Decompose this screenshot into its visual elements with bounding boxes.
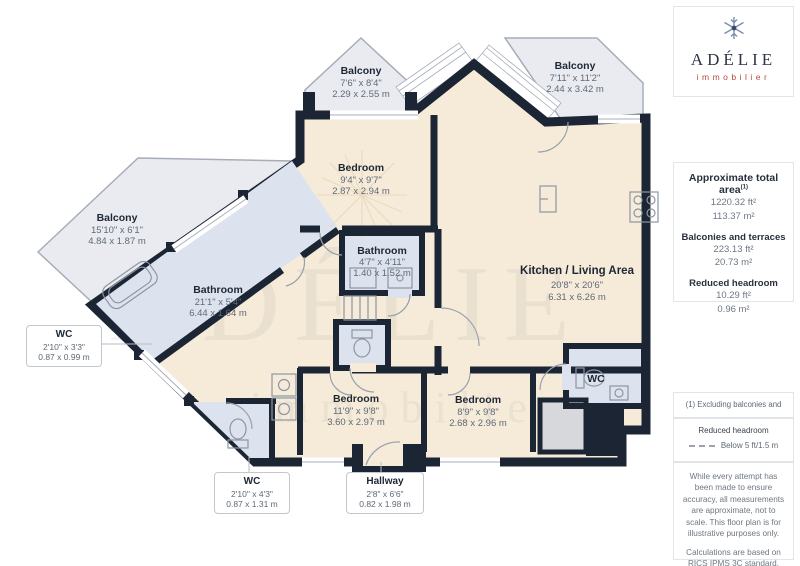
- brand-name: ADÉLIE: [674, 50, 793, 70]
- svg-text:20'8" x 20'6": 20'8" x 20'6": [551, 280, 603, 291]
- callout-hallway-metric: 0.82 x 1.98 m: [349, 499, 421, 510]
- footnote-box: (1) Excluding balconies and terraces: [673, 392, 794, 418]
- svg-text:2.87 x 2.94 m: 2.87 x 2.94 m: [332, 186, 390, 197]
- bedroom-top-label: Bedroom 9'4" x 9'7" 2.87 x 2.94 m: [332, 162, 390, 197]
- balcony-left-label: Balcony 15'10" x 6'1" 4.84 x 1.87 m: [88, 212, 146, 247]
- dashed-line-icon: [689, 445, 715, 447]
- disclaimer-box: While every attempt has been made to ens…: [673, 462, 794, 560]
- callout-wc-bottom: WC 2'10" x 4'3" 0.87 x 1.31 m: [214, 472, 290, 514]
- svg-text:Balcony: Balcony: [555, 60, 596, 72]
- svg-text:Bathroom: Bathroom: [357, 245, 407, 257]
- disclaimer-text-2: Calculations are based on RICS IPMS 3C s…: [681, 547, 786, 566]
- total-area-ft: 1220.32 ft²: [674, 196, 793, 210]
- callout-wc-bottom-imperial: 2'10" x 4'3": [217, 489, 287, 500]
- legend-entry: Below 5 ft/1.5 m: [721, 441, 778, 450]
- svg-text:21'1" x 5'4": 21'1" x 5'4": [195, 297, 242, 308]
- floorplan-page: ADÉLIE immobilier: [0, 0, 800, 566]
- callout-wc-left: WC 2'10" x 3'3" 0.87 x 0.99 m: [26, 325, 102, 367]
- bedroom-bottom-left-label: Bedroom 11'9" x 9'8" 3.60 x 2.97 m: [327, 393, 385, 428]
- callout-wc-left-name: WC: [29, 329, 99, 342]
- svg-text:Kitchen / Living Area: Kitchen / Living Area: [520, 265, 635, 277]
- svg-text:15'10" x 6'1": 15'10" x 6'1": [91, 225, 143, 236]
- disclaimer-text-1: While every attempt has been made to ens…: [681, 471, 786, 540]
- bottom-right-solid: [586, 404, 624, 456]
- svg-text:7'11" x 11'2": 7'11" x 11'2": [550, 73, 601, 84]
- bathroom-left-label: Bathroom 21'1" x 5'4" 6.44 x 1.64 m: [189, 284, 247, 319]
- floorplan-drawing: ADÉLIE immobilier: [0, 0, 672, 566]
- balcony-top-left-label: Balcony 7'6" x 8'4" 2.29 x 2.55 m: [332, 65, 390, 100]
- svg-text:2.68 x 2.96 m: 2.68 x 2.96 m: [449, 418, 507, 429]
- total-area-m: 113.37 m²: [674, 210, 793, 224]
- svg-text:6.44 x 1.64 m: 6.44 x 1.64 m: [189, 308, 247, 319]
- balcony-top-right-label: Balcony 7'11" x 11'2" 2.44 x 3.42 m: [546, 60, 604, 95]
- entrance-vestibule: [352, 444, 426, 472]
- area-summary-box: Approximate total area(1) 1220.32 ft² 11…: [673, 162, 794, 302]
- wc-bottom-floor: [192, 402, 272, 458]
- snowflake-icon: [721, 15, 747, 41]
- balconies-ft: 223.13 ft²: [674, 243, 793, 257]
- headroom-ft: 10.29 ft²: [674, 289, 793, 303]
- bathroom-mid-label: Bathroom 4'7" x 4'11" 1.40 x 1.52 m: [353, 245, 411, 279]
- svg-text:Bedroom: Bedroom: [333, 393, 379, 405]
- wc-central-floor: [339, 325, 385, 365]
- callout-hallway-imperial: 2'8" x 6'6": [349, 489, 421, 500]
- svg-text:4'7" x 4'11": 4'7" x 4'11": [359, 257, 405, 268]
- svg-text:1.40 x 1.52 m: 1.40 x 1.52 m: [353, 268, 411, 279]
- callout-wc-left-metric: 0.87 x 0.99 m: [29, 352, 99, 363]
- svg-text:Balcony: Balcony: [341, 65, 382, 77]
- svg-text:11'9" x 9'8": 11'9" x 9'8": [333, 406, 379, 417]
- svg-text:6.31 x 6.26 m: 6.31 x 6.26 m: [548, 292, 606, 303]
- callout-wc-left-imperial: 2'10" x 3'3": [29, 342, 99, 353]
- svg-text:Bedroom: Bedroom: [338, 162, 384, 174]
- legend-title: Reduced headroom: [674, 426, 793, 435]
- svg-text:Bedroom: Bedroom: [455, 394, 501, 406]
- svg-text:2.29 x 2.55 m: 2.29 x 2.55 m: [332, 89, 390, 100]
- callout-hallway-name: Hallway: [349, 476, 421, 489]
- headroom-title: Reduced headroom: [674, 278, 793, 289]
- wc-right-floor: [569, 349, 641, 403]
- callout-wc-bottom-metric: 0.87 x 1.31 m: [217, 499, 287, 510]
- balconies-m: 20.73 m²: [674, 256, 793, 270]
- svg-text:9'4" x 9'7": 9'4" x 9'7": [340, 175, 382, 186]
- balconies-title: Balconies and terraces: [674, 232, 793, 243]
- svg-text:Bathroom: Bathroom: [193, 284, 243, 296]
- svg-text:7'6" x 8'4": 7'6" x 8'4": [340, 78, 382, 89]
- bedroom-bottom-right-label: Bedroom 8'9" x 9'8" 2.68 x 2.96 m: [449, 394, 507, 429]
- brand-tagline: immobilier: [674, 72, 793, 82]
- callout-wc-bottom-name: WC: [217, 476, 287, 489]
- brand-logo-box: ADÉLIE immobilier: [673, 6, 794, 97]
- footnote-marker: (1): [741, 185, 748, 191]
- svg-text:2.44 x 3.42 m: 2.44 x 3.42 m: [546, 84, 604, 95]
- total-area-title: Approximate total area(1): [674, 172, 793, 196]
- wc-right-label: WC: [587, 373, 605, 385]
- svg-text:8'9" x 9'8": 8'9" x 9'8": [457, 407, 499, 418]
- legend-box: Reduced headroom Below 5 ft/1.5 m: [673, 418, 794, 462]
- callout-hallway: Hallway 2'8" x 6'6" 0.82 x 1.98 m: [346, 472, 424, 514]
- svg-text:Balcony: Balcony: [97, 212, 138, 224]
- svg-text:4.84 x 1.87 m: 4.84 x 1.87 m: [88, 236, 146, 247]
- svg-text:3.60 x 2.97 m: 3.60 x 2.97 m: [327, 417, 385, 428]
- headroom-m: 0.96 m²: [674, 303, 793, 317]
